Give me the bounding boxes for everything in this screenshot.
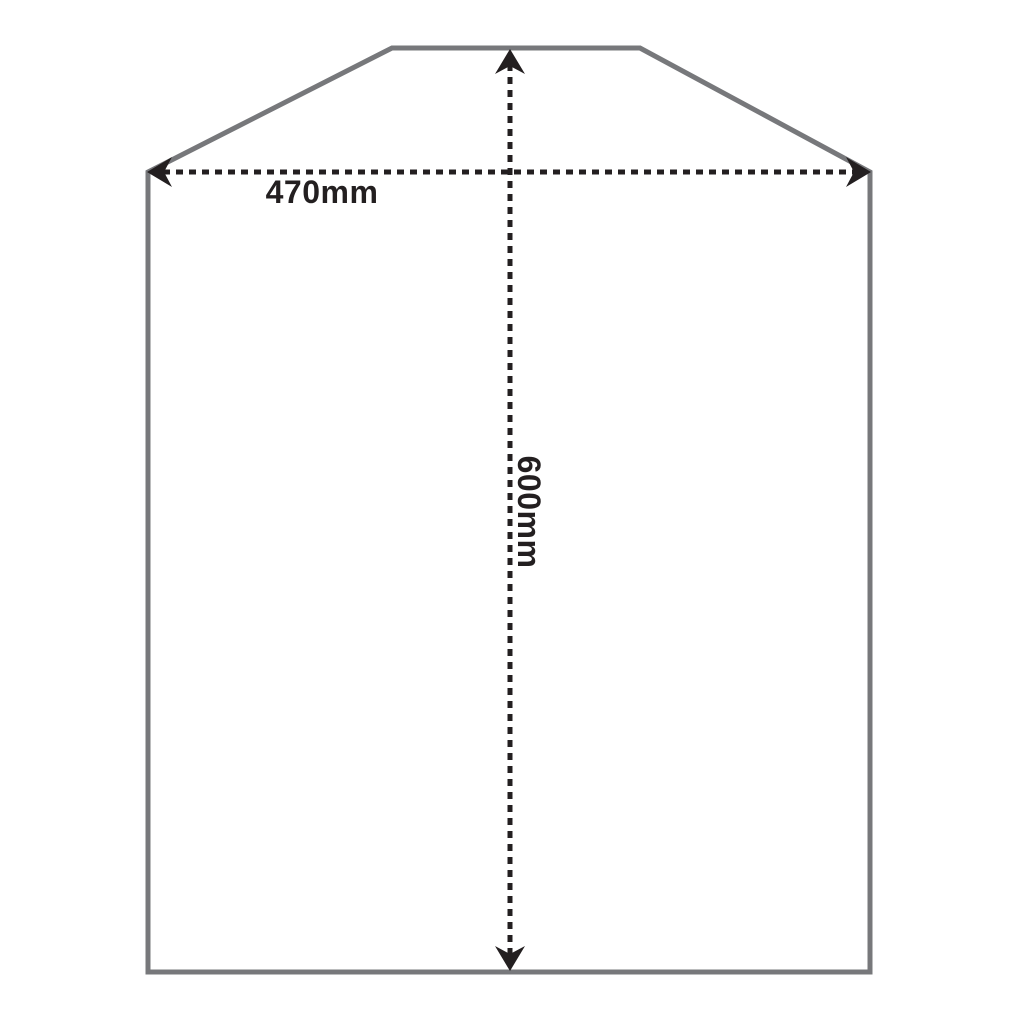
height-dimension-label: 600mm [511, 456, 547, 569]
dimension-diagram: 470mm 600mm [0, 0, 1024, 1024]
width-dimension-label: 470mm [266, 174, 379, 210]
arrowhead-right-icon [846, 157, 871, 187]
dimension-diagram-page: 470mm 600mm [0, 0, 1024, 1024]
